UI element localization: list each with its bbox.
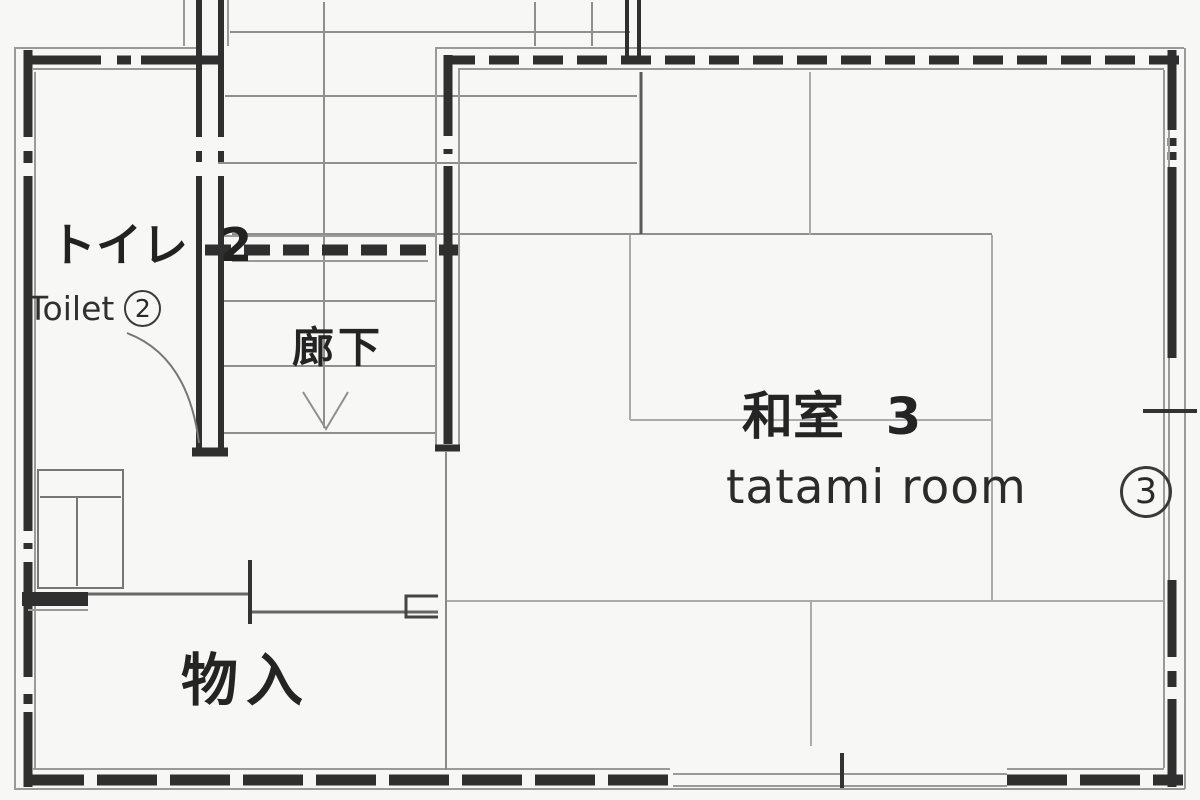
corridor-label: 廊下	[292, 327, 384, 369]
toilet-label-en: Toilet 2	[28, 290, 161, 327]
floor-plan-drawing	[0, 0, 1200, 800]
tatami-room-label-en: tatami room	[726, 464, 1027, 511]
toilet-door-arc	[127, 333, 199, 443]
toilet-label-en-text: Toilet	[28, 292, 114, 325]
toilet-features	[38, 333, 199, 588]
tatami-room-label-jp: 和室 3	[742, 392, 921, 443]
fixture-outline	[38, 470, 123, 588]
wall-stub-top	[627, 0, 639, 58]
stair-direction-arrowhead	[303, 392, 348, 429]
tatami-room-circled-number: 3	[1120, 466, 1172, 518]
sliding-door-jamb	[406, 596, 438, 617]
storage-label: 物入	[181, 653, 311, 710]
toilet-circled-number: 2	[124, 290, 161, 327]
toilet-label-jp: トイレ 2	[50, 222, 252, 268]
washbasin-fixture	[38, 470, 123, 588]
floor-plan: トイレ 2 Toilet 2 廊下 和室 3 tatami room 3 物入	[0, 0, 1200, 800]
